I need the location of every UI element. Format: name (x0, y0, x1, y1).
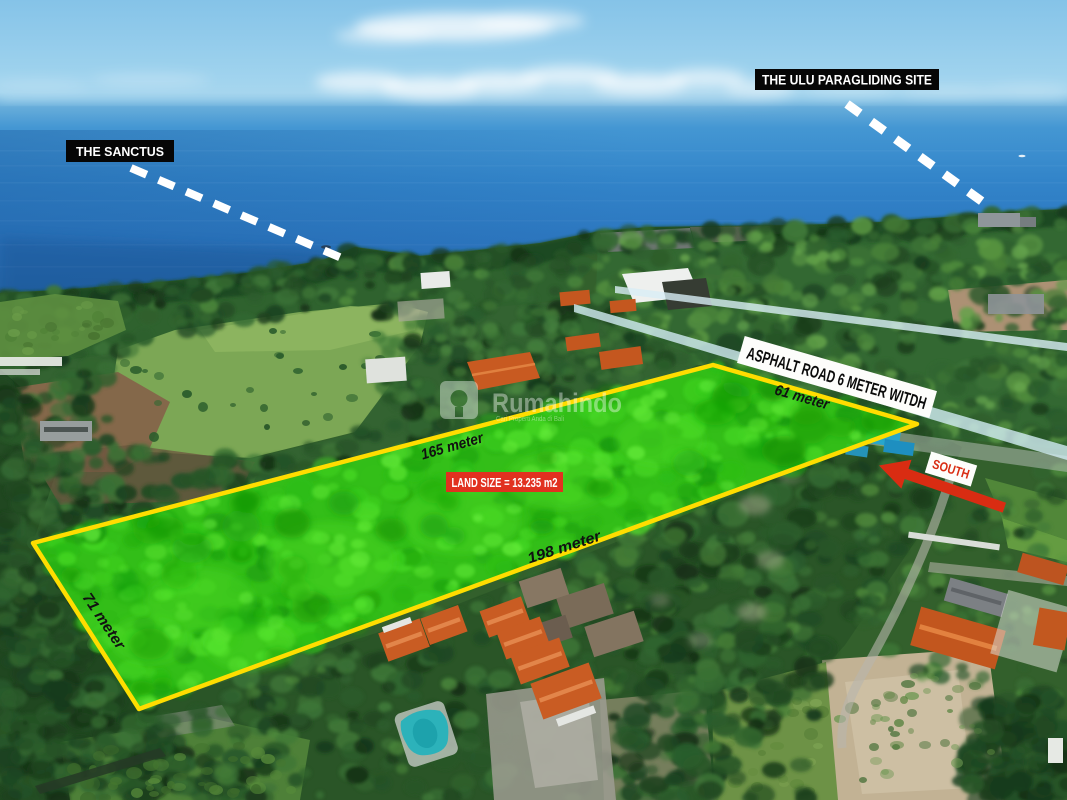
svg-text:THE ULU PARAGLIDING SITE: THE ULU PARAGLIDING SITE (762, 73, 932, 88)
svg-text:Rumahindo: Rumahindo (492, 388, 622, 418)
svg-text:THE SANCTUS: THE SANCTUS (76, 144, 164, 159)
svg-text:Cari Properti Anda di Bali: Cari Properti Anda di Bali (496, 416, 564, 423)
svg-text:LAND SIZE = 13.235 m2: LAND SIZE = 13.235 m2 (452, 475, 558, 490)
